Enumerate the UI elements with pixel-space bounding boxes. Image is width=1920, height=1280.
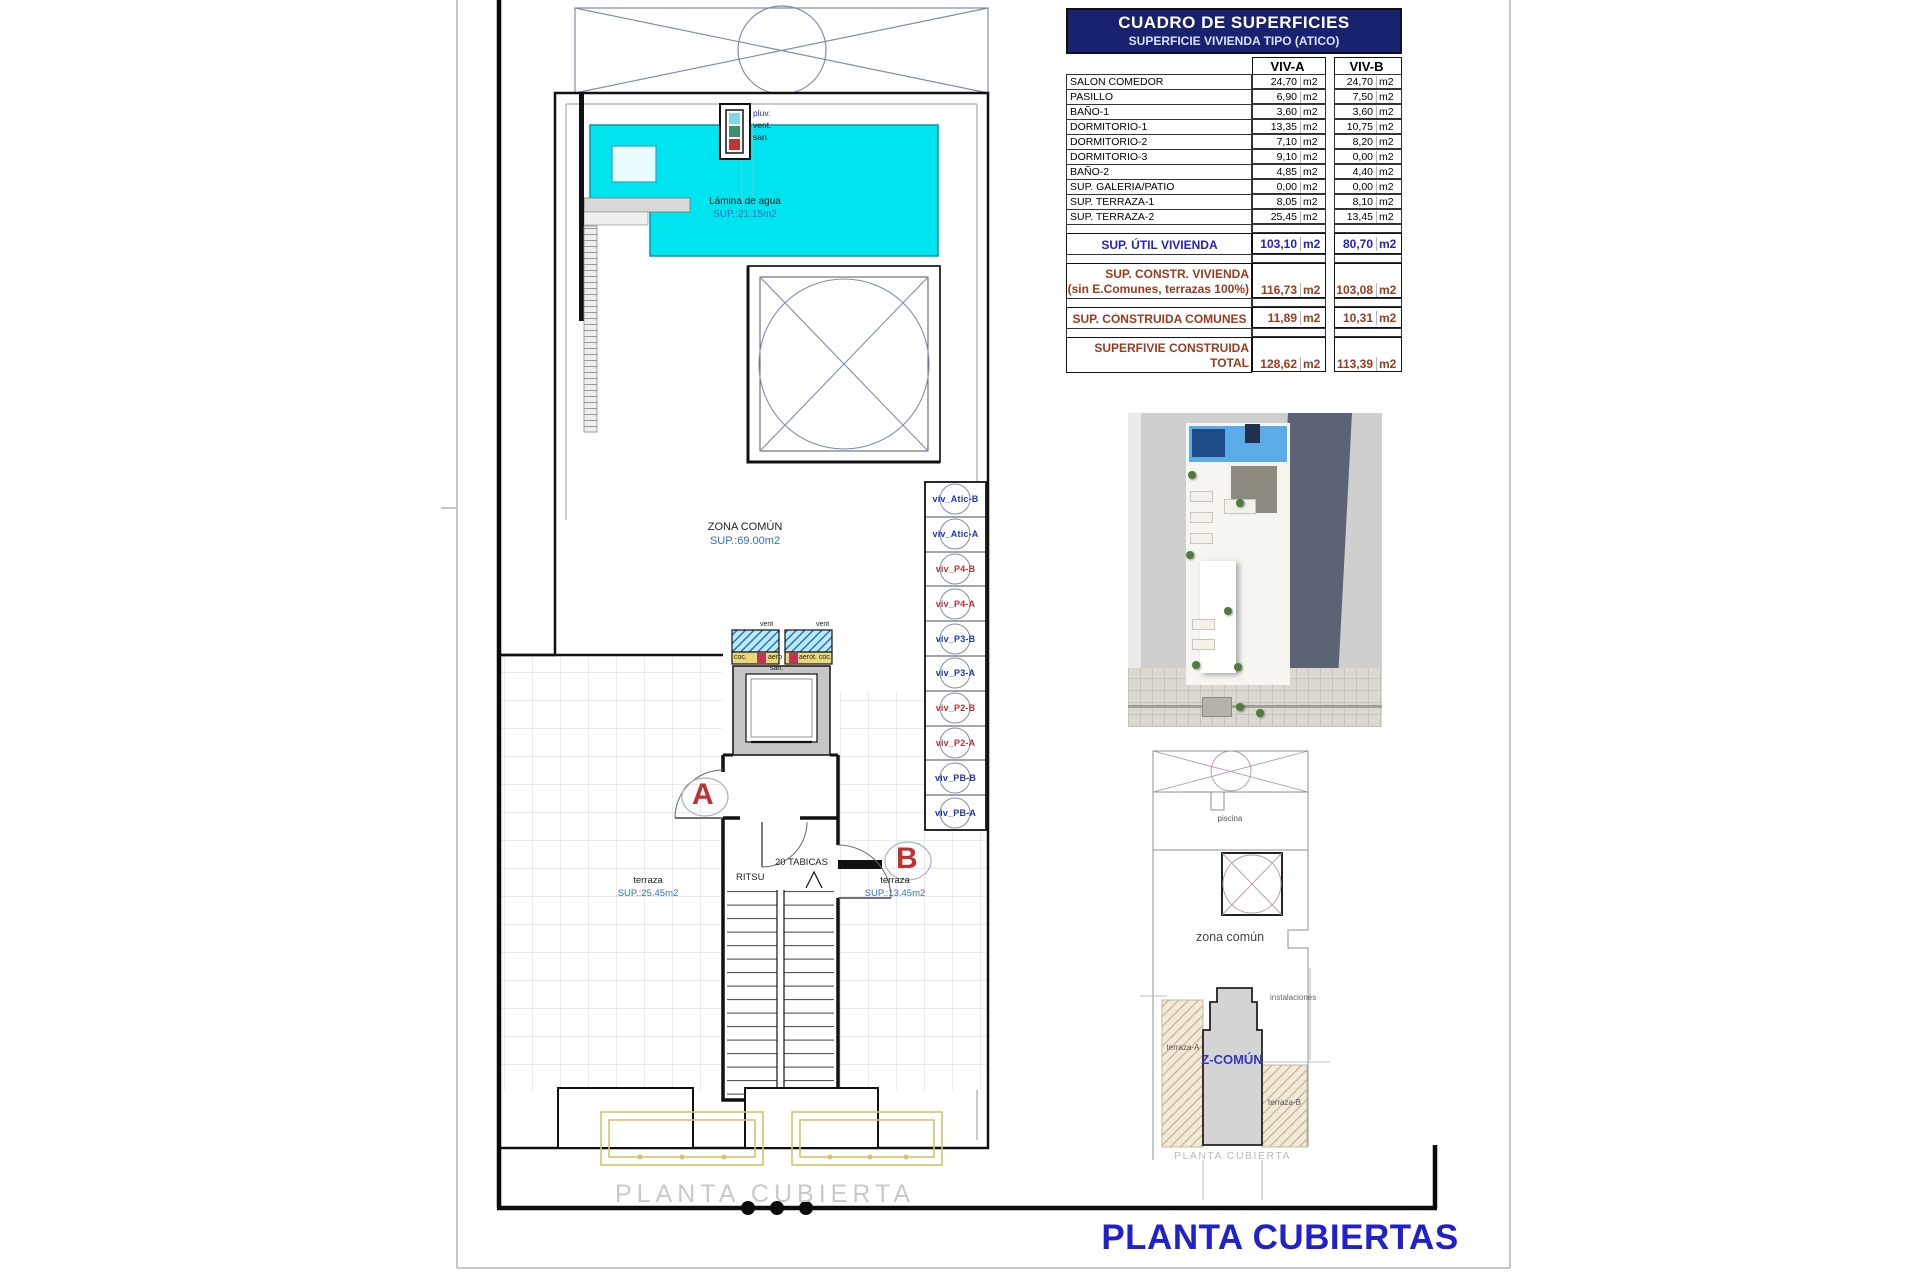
surface-row: SALON COMEDOR24,70m224,70m2 [1066,74,1402,90]
site-terraza-b-label: terraza-B [1262,1098,1307,1107]
render-lounger [1190,491,1213,502]
column-gap [1326,194,1334,210]
summary-total-label: SUPERFIVIE CONSTRUIDA TOTAL [1066,337,1252,373]
column-gap [1326,209,1334,225]
pergola-structure [575,6,988,94]
left-bold-wall [579,93,584,321]
pool-area-label: SUP.:21.15m2 [695,209,795,221]
column-gap [1326,179,1334,195]
row-value-vivb: 24,70m2 [1334,74,1402,89]
column-gap [1326,89,1334,105]
render-lounger [1192,639,1215,650]
row-value-vivb: 0,00m2 [1334,179,1402,194]
riser-legend-box [720,104,750,159]
site-piscina-label: piscina [1200,814,1260,823]
row-value-viva: 3,60m2 [1252,104,1326,119]
door-b-label: B [896,842,918,877]
riser-viv_PB-B: viv_PB-B [925,760,986,795]
row-value-viva: 7,10m2 [1252,134,1326,149]
pool-label: Lámina de agua [695,196,795,208]
riser-viv_P4-A: viv_P4-A [925,586,986,621]
row-value-vivb: 10,75m2 [1334,119,1402,134]
door-a-label: A [692,778,714,813]
summary-comunes-label: SUP. CONSTRUIDA COMUNES [1066,307,1252,329]
terraza-right-area-label: SUP.:13.45m2 [845,889,945,900]
row-label: SUP. GALERIA/PATIO [1066,179,1252,195]
legend-san-label: san. [753,133,769,143]
row-value-vivb: 13,45m2 [1334,209,1402,224]
surface-table-header: CUADRO DE SUPERFICIES SUPERFICIE VIVIEND… [1066,8,1402,54]
render-lounger [1190,512,1213,523]
row-value-vivb: 3,60m2 [1334,104,1402,119]
legend-pluv-label: pluv. [753,109,770,119]
riser-viv_P3-B: viv_P3-B [925,621,986,656]
column-gap [1326,119,1334,135]
render-plant [1224,607,1232,615]
site-caption: PLANTA CUBIERTA [1170,1150,1295,1162]
row-value-viva: 8,05m2 [1252,194,1326,209]
render-plant [1234,663,1242,671]
row-value-vivb: 4,40m2 [1334,164,1402,179]
site-z-comun-label: Z-COMÚN [1200,1053,1264,1068]
render-3d-aerial [1128,413,1382,727]
riser-viv_P4-B: viv_P4-B [925,552,986,587]
shaft-aero-label: aero [768,654,782,662]
surface-table: CUADRO DE SUPERFICIES SUPERFICIE VIVIEND… [1066,8,1402,373]
row-label: DORMITORIO-2 [1066,134,1252,150]
row-value-viva: 0,00m2 [1252,179,1326,194]
render-pool [1189,426,1287,462]
render-chimney [1245,424,1260,443]
surface-row: SUP. TERRAZA-18,05m28,10m2 [1066,194,1402,210]
surface-row: PASILLO6,90m27,50m2 [1066,89,1402,105]
site-instalaciones-label: instalaciones [1270,993,1316,1002]
summary-row-total: SUPERFIVIE CONSTRUIDA TOTAL 128,62m2 113… [1066,337,1402,373]
surface-table-rows: SALON COMEDOR24,70m224,70m2PASILLO6,90m2… [1066,74,1402,225]
summary-row-comunes: SUP. CONSTRUIDA COMUNES 11,89m2 10,31m2 [1066,307,1402,329]
shaft-vent-right-label: vent [816,621,829,629]
summary-util-viva: 103,10m2 [1252,233,1326,254]
render-plant [1186,551,1194,559]
render-pool-deep [1192,429,1225,457]
terraza-left-area-label: SUP.:25.45m2 [598,889,698,900]
site-zona-comun-label: zona común [1175,930,1285,944]
tabicas-label: 20 TABICAS [775,858,828,869]
shaft-coc-label: coc. [734,654,747,662]
render-table-chairs [1202,697,1232,717]
summary-constr-vivb: 103,08m2 [1334,263,1402,298]
summary-util-vivb: 80,70m2 [1334,233,1402,254]
left-terrace-tiles [501,657,722,1090]
render-pavement-line [1128,705,1382,708]
surface-table-subtitle: SUPERFICIE VIVIENDA TIPO (ATICO) [1068,34,1400,48]
row-value-viva: 6,90m2 [1252,89,1326,104]
row-label: SALON COMEDOR [1066,74,1252,90]
zona-comun-label: ZONA COMÚN [690,521,800,534]
column-gap [1326,134,1334,150]
surface-row: BAÑO-13,60m23,60m2 [1066,104,1402,120]
row-value-viva: 4,85m2 [1252,164,1326,179]
render-stair-volume [1200,561,1236,673]
riser-viv_P3-A: viv_P3-A [925,656,986,691]
column-header-viva: VIV-A [1252,57,1326,75]
zona-comun-area-label: SUP.:69.00m2 [690,535,800,548]
column-header-vivb: VIV-B [1334,57,1402,75]
row-label: SUP. TERRAZA-2 [1066,209,1252,225]
render-plant [1236,703,1244,711]
riser-viv_PB-A: viv_PB-A [925,795,986,830]
shaft-vent-left-label: vent [760,621,773,629]
left-wall-hatch [584,226,597,432]
surface-row: DORMITORIO-39,10m20,00m2 [1066,149,1402,165]
summary-row-util: SUP. ÚTIL VIVIENDA 103,10m2 80,70m2 [1066,233,1402,255]
riser-viv_Atic-B: viv_Atic-B [925,482,986,517]
row-value-vivb: 7,50m2 [1334,89,1402,104]
row-label: DORMITORIO-3 [1066,149,1252,165]
column-gap [1326,74,1334,90]
legend-vent-label: vent. [753,121,771,131]
summary-total-vivb: 113,39m2 [1334,337,1402,372]
surface-row: DORMITORIO-27,10m28,20m2 [1066,134,1402,150]
render-plant [1192,661,1200,669]
riser-viv_P2-B: viv_P2-B [925,691,986,726]
plan-watermark: PLANTA CUBIERTA [600,1180,930,1209]
terraza-right-label: terraza [845,876,945,887]
surface-row: SUP. TERRAZA-225,45m213,45m2 [1066,209,1402,225]
summary-comunes-viva: 11,89m2 [1252,307,1326,328]
surface-row: BAÑO-24,85m24,40m2 [1066,164,1402,180]
summary-constr-viva: 116,73m2 [1252,263,1326,298]
surface-row: SUP. GALERIA/PATIO0,00m20,00m2 [1066,179,1402,195]
row-value-viva: 9,10m2 [1252,149,1326,164]
render-plant [1188,471,1196,479]
skylight [748,266,940,462]
riser-labels: viv_Atic-Bviv_Atic-Aviv_P4-Bviv_P4-Aviv_… [925,482,986,830]
summary-row-constr: SUP. CONSTR. VIVIENDA (sin E.Comunes, te… [1066,263,1402,299]
row-label: BAÑO-1 [1066,104,1252,120]
site-terraza-a-label: terraza-A [1162,1043,1204,1052]
stair-ritsu-label: RITSU [736,873,765,884]
summary-comunes-vivb: 10,31m2 [1334,307,1402,328]
row-label: PASILLO [1066,89,1252,105]
row-label: SUP. TERRAZA-1 [1066,194,1252,210]
row-value-viva: 24,70m2 [1252,74,1326,89]
shaft-aerot-coc-label: aerot. coc. [799,654,832,662]
render-lounger [1190,533,1213,544]
riser-viv_Atic-A: viv_Atic-A [925,517,986,552]
summary-constr-label: SUP. CONSTR. VIVIENDA (sin E.Comunes, te… [1066,263,1252,299]
row-value-vivb: 0,00m2 [1334,149,1402,164]
render-plant [1236,499,1244,507]
render-plant [1256,709,1264,717]
column-gap [1326,104,1334,120]
surface-row: DORMITORIO-113,35m210,75m2 [1066,119,1402,135]
summary-total-viva: 128,62m2 [1252,337,1326,372]
column-gap [1326,164,1334,180]
row-label: DORMITORIO-1 [1066,119,1252,135]
row-value-viva: 13,35m2 [1252,119,1326,134]
row-value-viva: 25,45m2 [1252,209,1326,224]
column-gap [1326,149,1334,165]
summary-util-label: SUP. ÚTIL VIVIENDA [1066,233,1252,255]
drawing-sheet: Lámina de agua SUP.:21.15m2 ZONA COMÚN S… [0,0,1920,1280]
render-lounger [1192,619,1215,630]
terraza-left-label: terraza [598,876,698,887]
row-label: BAÑO-2 [1066,164,1252,180]
surface-table-title: CUADRO DE SUPERFICIES [1068,13,1400,33]
riser-viv_P2-A: viv_P2-A [925,726,986,761]
shaft-san-label: san. [770,665,783,673]
row-value-vivb: 8,20m2 [1334,134,1402,149]
row-value-vivb: 8,10m2 [1334,194,1402,209]
surface-table-column-headers: VIV-A VIV-B [1066,57,1402,75]
sheet-title: PLANTA CUBIERTAS [1100,1218,1460,1258]
